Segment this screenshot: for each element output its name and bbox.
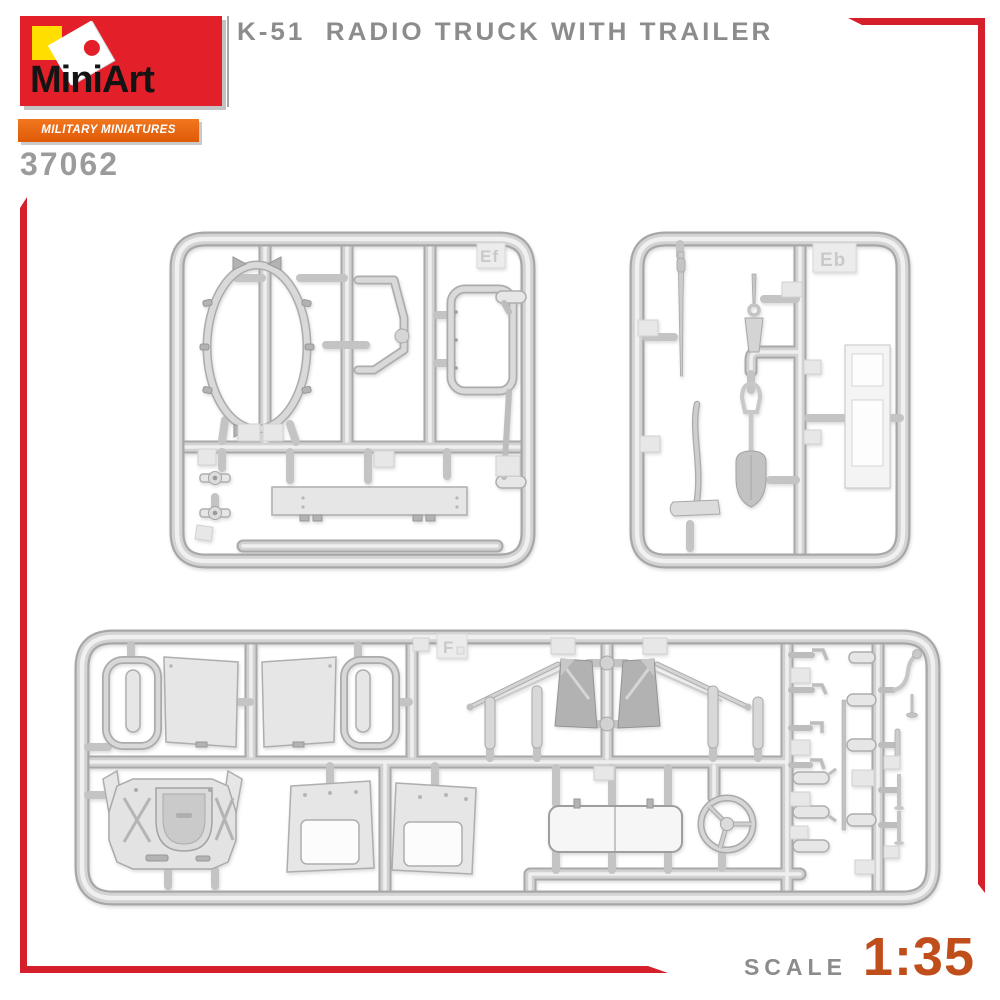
logo-red-dot-icon [81,37,103,59]
scale-indicator: SCALE 1:35 [744,933,975,982]
running-board-part [272,487,467,521]
sprue-f-label: F [443,638,454,657]
sprue-ef-tag: Ef [477,243,505,268]
sprue-eb: Eb [637,239,903,561]
red-accent-line-top-right [848,18,985,25]
bench-seat-part [549,799,682,852]
sprue-f: F [82,634,933,898]
steering-wheel-part [701,798,753,850]
sprue-f-tag: F [437,634,467,658]
axe-part [670,404,720,516]
page-title: K-51 RADIO TRUCK WITH TRAILER [237,17,773,46]
sprue-eb-label: Eb [820,250,846,271]
pick-part [745,274,763,352]
mast-pole-part [677,252,685,376]
kit-number: 37062 [20,146,119,183]
lever-parts-column-1 [790,650,836,852]
sprue-eb-tag: Eb [813,243,856,272]
sprue-ef-label: Ef [480,247,499,266]
bracket-part [358,280,409,370]
logo-separator [227,16,229,107]
canvas-bow-parts [200,257,314,437]
instruction-page: Ef [0,0,1000,1000]
sprue-ef: Ef [177,239,528,561]
trailer-frame-part [845,345,890,488]
shovel-part [736,384,766,507]
brand-name: MiniArt [30,59,154,102]
cab-floor-part [103,771,242,869]
series-banner: MILITARY MINIATURES SERIES [18,119,199,142]
miniart-logo: MiniArt [20,16,222,106]
scale-value: 1:35 [863,933,975,982]
scale-label: SCALE [744,954,847,981]
red-accent-line-right [978,18,985,893]
page-graphics: Ef [0,0,1000,1000]
